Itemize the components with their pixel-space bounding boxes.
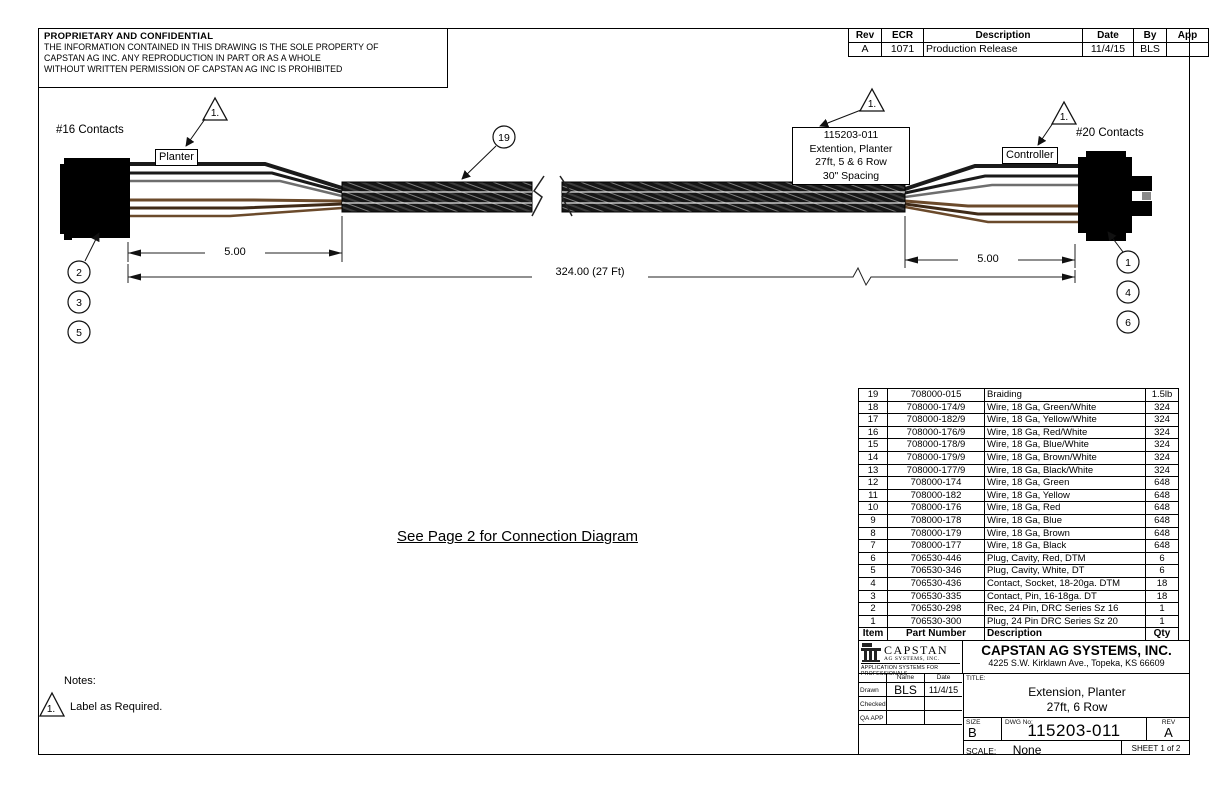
- bom-description: Contact, Socket, 18-20ga. DTM: [985, 577, 1146, 590]
- bom-qty: 324: [1146, 414, 1179, 427]
- dim-right-text: 5.00: [958, 253, 1018, 266]
- left-wire-fan: [130, 164, 342, 216]
- table-row: 5 706530-346 Plug, Cavity, White, DT 6: [859, 565, 1179, 578]
- bom-part-number-header: Part Number: [888, 628, 985, 641]
- planter-tag: Planter: [155, 149, 198, 166]
- bom-qty: 18: [1146, 577, 1179, 590]
- bom-qty: 324: [1146, 464, 1179, 477]
- bom-description: Contact, Pin, 16-18ga. DT: [985, 590, 1146, 603]
- logo-cell: CAPSTAN AG SYSTEMS, INC. APPLICATION SYS…: [859, 641, 963, 674]
- cable-tag-line: 30" Spacing: [793, 170, 909, 184]
- bom-item: 5: [859, 565, 888, 578]
- table-row: 2 706530-298 Rec, 24 Pin, DRC Series Sz …: [859, 603, 1179, 616]
- company-address: 4225 S.W. Kirklawn Ave., Topeka, KS 6660…: [963, 658, 1190, 669]
- dim-left-text: 5.00: [205, 246, 265, 259]
- right-connector: [1078, 151, 1152, 241]
- bom-item: 4: [859, 577, 888, 590]
- drawn-name: BLS: [887, 683, 925, 697]
- bom-item: 2: [859, 603, 888, 616]
- left-contacts-label: #16 Contacts: [56, 124, 124, 136]
- balloon-number: 2: [76, 267, 82, 279]
- balloon-6: 6: [1117, 311, 1139, 333]
- balloon-19: 19: [462, 126, 515, 179]
- bom-description: Plug, 24 Pin DRC Series Sz 20: [985, 615, 1146, 628]
- flag-number: 1.: [1060, 112, 1068, 123]
- bom-qty: 324: [1146, 439, 1179, 452]
- table-row: 11 708000-182 Wire, 18 Ga, Yellow 648: [859, 489, 1179, 502]
- right-contacts-label: #20 Contacts: [1076, 127, 1144, 139]
- title-label: TITLE:: [966, 675, 986, 682]
- size-cell: SIZE B: [963, 718, 1001, 741]
- drawing-title-line2: 27ft, 6 Row: [964, 700, 1190, 715]
- sheet-cell: SHEET 1 of 2: [1121, 741, 1190, 754]
- bom-part-number: 706530-446: [888, 552, 985, 565]
- drawn-label: Drawn: [859, 683, 887, 697]
- table-row: 16 708000-176/9 Wire, 18 Ga, Red/White 3…: [859, 426, 1179, 439]
- bom-part-number: 708000-177/9: [888, 464, 985, 477]
- flag-note-planter: 1.: [186, 98, 227, 146]
- bom-item: 9: [859, 514, 888, 527]
- bom-item: 6: [859, 552, 888, 565]
- note-1-flag-triangle: 1.: [40, 693, 64, 716]
- bom-description: Wire, 18 Ga, Green/White: [985, 401, 1146, 414]
- bom-item: 13: [859, 464, 888, 477]
- notes-heading: Notes:: [64, 675, 96, 687]
- controller-tag: Controller: [1002, 147, 1058, 164]
- bom-qty: 648: [1146, 540, 1179, 553]
- bom-description: Braiding: [985, 389, 1146, 402]
- table-row: 7 708000-177 Wire, 18 Ga, Black 648: [859, 540, 1179, 553]
- left-connector: [60, 158, 130, 240]
- table-row: 13 708000-177/9 Wire, 18 Ga, Black/White…: [859, 464, 1179, 477]
- bom-part-number: 708000-179/9: [888, 451, 985, 464]
- bom-description: Wire, 18 Ga, Blue: [985, 514, 1146, 527]
- bom-header-row: Item Part Number Description Qty: [859, 628, 1179, 641]
- checked-label: Checked: [859, 697, 887, 711]
- sheet-label: SHEET 1 of 2: [1122, 741, 1190, 753]
- bom-qty: 6: [1146, 565, 1179, 578]
- table-row: 12 708000-174 Wire, 18 Ga, Green 648: [859, 477, 1179, 490]
- bom-description-header: Description: [985, 628, 1146, 641]
- table-row: 18 708000-174/9 Wire, 18 Ga, Green/White…: [859, 401, 1179, 414]
- bom-item: 19: [859, 389, 888, 402]
- logo-subtitle: AG SYSTEMS, INC.: [884, 656, 948, 662]
- bom-description: Rec, 24 Pin, DRC Series Sz 16: [985, 603, 1146, 616]
- balloon-number: 1: [1125, 257, 1131, 269]
- bom-qty: 324: [1146, 401, 1179, 414]
- bom-part-number: 706530-436: [888, 577, 985, 590]
- bom-part-number: 708000-182/9: [888, 414, 985, 427]
- bom-qty-header: Qty: [1146, 628, 1179, 641]
- note-1-text: Label as Required.: [70, 701, 162, 713]
- bom-item: 15: [859, 439, 888, 452]
- dim-overall-text: 324.00 (27 Ft): [532, 266, 648, 279]
- bom-description: Plug, Cavity, Red, DTM: [985, 552, 1146, 565]
- table-row: 14 708000-179/9 Wire, 18 Ga, Brown/White…: [859, 451, 1179, 464]
- size-value: B: [964, 726, 1001, 740]
- dwg-no-cell: DWG No: 115203-011: [1001, 718, 1146, 741]
- company-name: CAPSTAN AG SYSTEMS, INC.: [963, 643, 1190, 658]
- cable-tag-line: Extention, Planter: [793, 143, 909, 157]
- company-cell: CAPSTAN AG SYSTEMS, INC. 4225 S.W. Kirkl…: [963, 641, 1190, 674]
- scale-label: SCALE:: [964, 746, 996, 756]
- bom-description: Plug, Cavity, White, DT: [985, 565, 1146, 578]
- bom-item: 17: [859, 414, 888, 427]
- balloon-number: 5: [76, 327, 82, 339]
- bom-description: Wire, 18 Ga, Brown/White: [985, 451, 1146, 464]
- bom-item: 7: [859, 540, 888, 553]
- dwg-no-label: DWG No:: [1005, 719, 1033, 726]
- break-zigzag-left: [532, 176, 544, 216]
- flag-note-controller: 1.: [1038, 102, 1076, 145]
- logo-name: CAPSTAN: [884, 645, 948, 656]
- bom-description: Wire, 18 Ga, Red/White: [985, 426, 1146, 439]
- rev-value: A: [1147, 726, 1190, 740]
- table-row: 10 708000-176 Wire, 18 Ga, Red 648: [859, 502, 1179, 515]
- approvals-grid: Name Date Drawn BLS 11/4/15 Checked QA A…: [859, 674, 963, 725]
- bom-part-number: 708000-178: [888, 514, 985, 527]
- drawn-date: 11/4/15: [925, 683, 962, 697]
- bom-description: Wire, 18 Ga, Green: [985, 477, 1146, 490]
- bom-description: Wire, 18 Ga, Black: [985, 540, 1146, 553]
- title-cell: TITLE: Extension, Planter 27ft, 6 Row: [963, 674, 1190, 718]
- bom-part-number: 708000-182: [888, 489, 985, 502]
- table-row: 6 706530-446 Plug, Cavity, Red, DTM 6: [859, 552, 1179, 565]
- bom-part-number: 708000-178/9: [888, 439, 985, 452]
- table-row: 1 706530-300 Plug, 24 Pin DRC Series Sz …: [859, 615, 1179, 628]
- balloon-2: 2: [68, 233, 99, 283]
- bom-item: 16: [859, 426, 888, 439]
- see-page-2-note: See Page 2 for Connection Diagram: [397, 528, 638, 545]
- bom-part-number: 708000-176/9: [888, 426, 985, 439]
- bom-item: 1: [859, 615, 888, 628]
- bom-qty: 648: [1146, 527, 1179, 540]
- table-row: 19 708000-015 Braiding 1.5lb: [859, 389, 1179, 402]
- bom-qty: 648: [1146, 502, 1179, 515]
- bom-description: Wire, 18 Ga, Yellow: [985, 489, 1146, 502]
- bom-part-number: 708000-177: [888, 540, 985, 553]
- balloon-number: 3: [76, 297, 82, 309]
- bom-part-number: 706530-300: [888, 615, 985, 628]
- bom-description: Wire, 18 Ga, Red: [985, 502, 1146, 515]
- balloon-5: 5: [68, 321, 90, 343]
- title-block: CAPSTAN AG SYSTEMS, INC. APPLICATION SYS…: [858, 640, 1190, 755]
- bom-description: Wire, 18 Ga, Black/White: [985, 464, 1146, 477]
- scale-value: None: [1001, 743, 1042, 757]
- bom-qty: 324: [1146, 451, 1179, 464]
- cable-tag-line: 27ft, 5 & 6 Row: [793, 156, 909, 170]
- bom-part-number: 708000-174/9: [888, 401, 985, 414]
- right-wire-fan: [905, 166, 1078, 222]
- flag-number: 1.: [47, 704, 55, 715]
- bom-item: 14: [859, 451, 888, 464]
- flag-note-cable-tag: 1.: [820, 89, 884, 126]
- bom-description: Wire, 18 Ga, Blue/White: [985, 439, 1146, 452]
- table-row: 17 708000-182/9 Wire, 18 Ga, Yellow/Whit…: [859, 414, 1179, 427]
- bom-part-number: 706530-346: [888, 565, 985, 578]
- bom-item: 18: [859, 401, 888, 414]
- drawing-sheet: PROPRIETARY AND CONFIDENTIAL THE INFORMA…: [0, 0, 1224, 792]
- bom-part-number: 708000-174: [888, 477, 985, 490]
- bom-item: 10: [859, 502, 888, 515]
- table-row: 9 708000-178 Wire, 18 Ga, Blue 648: [859, 514, 1179, 527]
- bom-qty: 648: [1146, 477, 1179, 490]
- flag-number: 1.: [868, 99, 876, 110]
- table-row: 4 706530-436 Contact, Socket, 18-20ga. D…: [859, 577, 1179, 590]
- bom-qty: 648: [1146, 514, 1179, 527]
- bom-description: Wire, 18 Ga, Brown: [985, 527, 1146, 540]
- rev-cell: REV A: [1146, 718, 1190, 741]
- bom-part-number: 708000-176: [888, 502, 985, 515]
- bom-qty: 648: [1146, 489, 1179, 502]
- bom-item: 8: [859, 527, 888, 540]
- bom-item: 11: [859, 489, 888, 502]
- qa-app-label: QA APP: [859, 711, 887, 725]
- bill-of-materials: 19 708000-015 Braiding 1.5lb 18 708000-1…: [858, 388, 1179, 641]
- balloon-4: 4: [1117, 281, 1139, 303]
- bom-qty: 6: [1146, 552, 1179, 565]
- bom-part-number: 706530-298: [888, 603, 985, 616]
- scale-cell: SCALE: None: [963, 741, 1121, 754]
- table-row: 15 708000-178/9 Wire, 18 Ga, Blue/White …: [859, 439, 1179, 452]
- name-header: Name: [887, 674, 925, 683]
- bom-description: Wire, 18 Ga, Yellow/White: [985, 414, 1146, 427]
- cable-identification-tag: 115203-011 Extention, Planter 27ft, 5 & …: [792, 127, 910, 185]
- bom-part-number: 706530-335: [888, 590, 985, 603]
- balloon-number: 6: [1125, 317, 1131, 329]
- balloon-number: 19: [498, 132, 510, 144]
- drawing-title-line1: Extension, Planter: [964, 685, 1190, 700]
- balloon-number: 4: [1125, 287, 1131, 299]
- bom-item-header: Item: [859, 628, 888, 641]
- bom-qty: 1: [1146, 615, 1179, 628]
- balloon-3: 3: [68, 291, 90, 313]
- bom-qty: 1.5lb: [1146, 389, 1179, 402]
- bom-part-number: 708000-179: [888, 527, 985, 540]
- cable-tag-line: 115203-011: [793, 129, 909, 143]
- date-header: Date: [925, 674, 962, 683]
- bom-qty: 18: [1146, 590, 1179, 603]
- capstan-logo-icon: [861, 643, 881, 663]
- flag-number: 1.: [211, 108, 219, 119]
- bom-item: 3: [859, 590, 888, 603]
- bom-qty: 324: [1146, 426, 1179, 439]
- table-row: 8 708000-179 Wire, 18 Ga, Brown 648: [859, 527, 1179, 540]
- bom-item: 12: [859, 477, 888, 490]
- table-row: 3 706530-335 Contact, Pin, 16-18ga. DT 1…: [859, 590, 1179, 603]
- bom-part-number: 708000-015: [888, 389, 985, 402]
- bom-qty: 1: [1146, 603, 1179, 616]
